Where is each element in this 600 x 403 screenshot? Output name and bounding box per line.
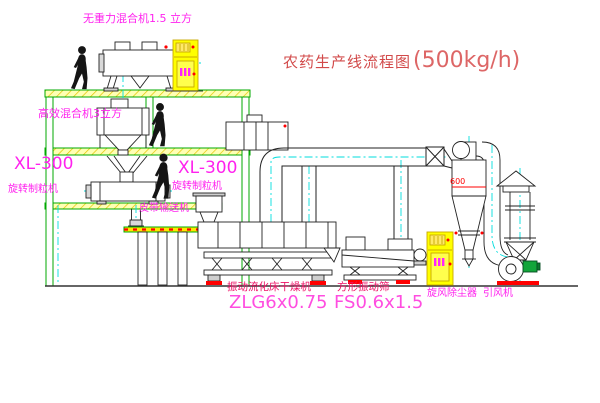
label-granulator-left-model: XL-300 — [14, 156, 73, 173]
label-granulator-right-name: 旋转制粒机 — [172, 182, 222, 192]
cyclone-separator — [452, 142, 508, 267]
y-chute — [107, 156, 147, 182]
diagram-title: 农药生产线流程图 (500kg/h) — [283, 48, 520, 73]
exhaust-stack — [497, 171, 536, 260]
label-granulator-right-model: XL-300 — [178, 160, 237, 177]
label-dryer-model: ZLG6x0.75 — [229, 294, 328, 312]
fluid-bed-dryer — [198, 222, 340, 285]
title-capacity: (500kg/h) — [413, 48, 520, 73]
belt-conveyor — [124, 227, 198, 285]
label-cyclone-dimension: 600 — [450, 178, 465, 186]
label-cyclone: 旋风除尘器 — [427, 289, 477, 299]
person-figure — [71, 46, 88, 89]
dryer-springs — [212, 258, 312, 270]
control-cabinet-top — [168, 40, 203, 91]
label-high-efficiency-mixer: 高效混合机3立方 — [38, 108, 122, 119]
damper-box — [426, 147, 444, 166]
granulator-upper-right — [226, 115, 288, 150]
vibrating-screen — [342, 237, 426, 284]
dryer-inlet — [193, 193, 225, 222]
label-fan: 引风机 — [483, 289, 513, 299]
flow-diagram-canvas: 农药生产线流程图 (500kg/h) 无重力混合机1.5 立方 高效混合机3立方… — [0, 0, 600, 403]
label-dryer-name: 振动流化床干燥机 — [227, 282, 311, 293]
label-screen-model: FS0.6x1.5 — [334, 294, 423, 312]
label-gravity-free-mixer: 无重力混合机1.5 立方 — [83, 13, 192, 24]
control-cabinet-bottom — [427, 232, 453, 285]
label-granulator-left-name: 旋转制粒机 — [8, 185, 58, 195]
label-belt-conveyor: 皮带输送机 — [139, 204, 189, 214]
induced-draft-fan — [497, 257, 540, 286]
title-chinese: 农药生产线流程图 — [283, 51, 411, 72]
label-screen-name: 方形振动筛 — [337, 282, 390, 293]
